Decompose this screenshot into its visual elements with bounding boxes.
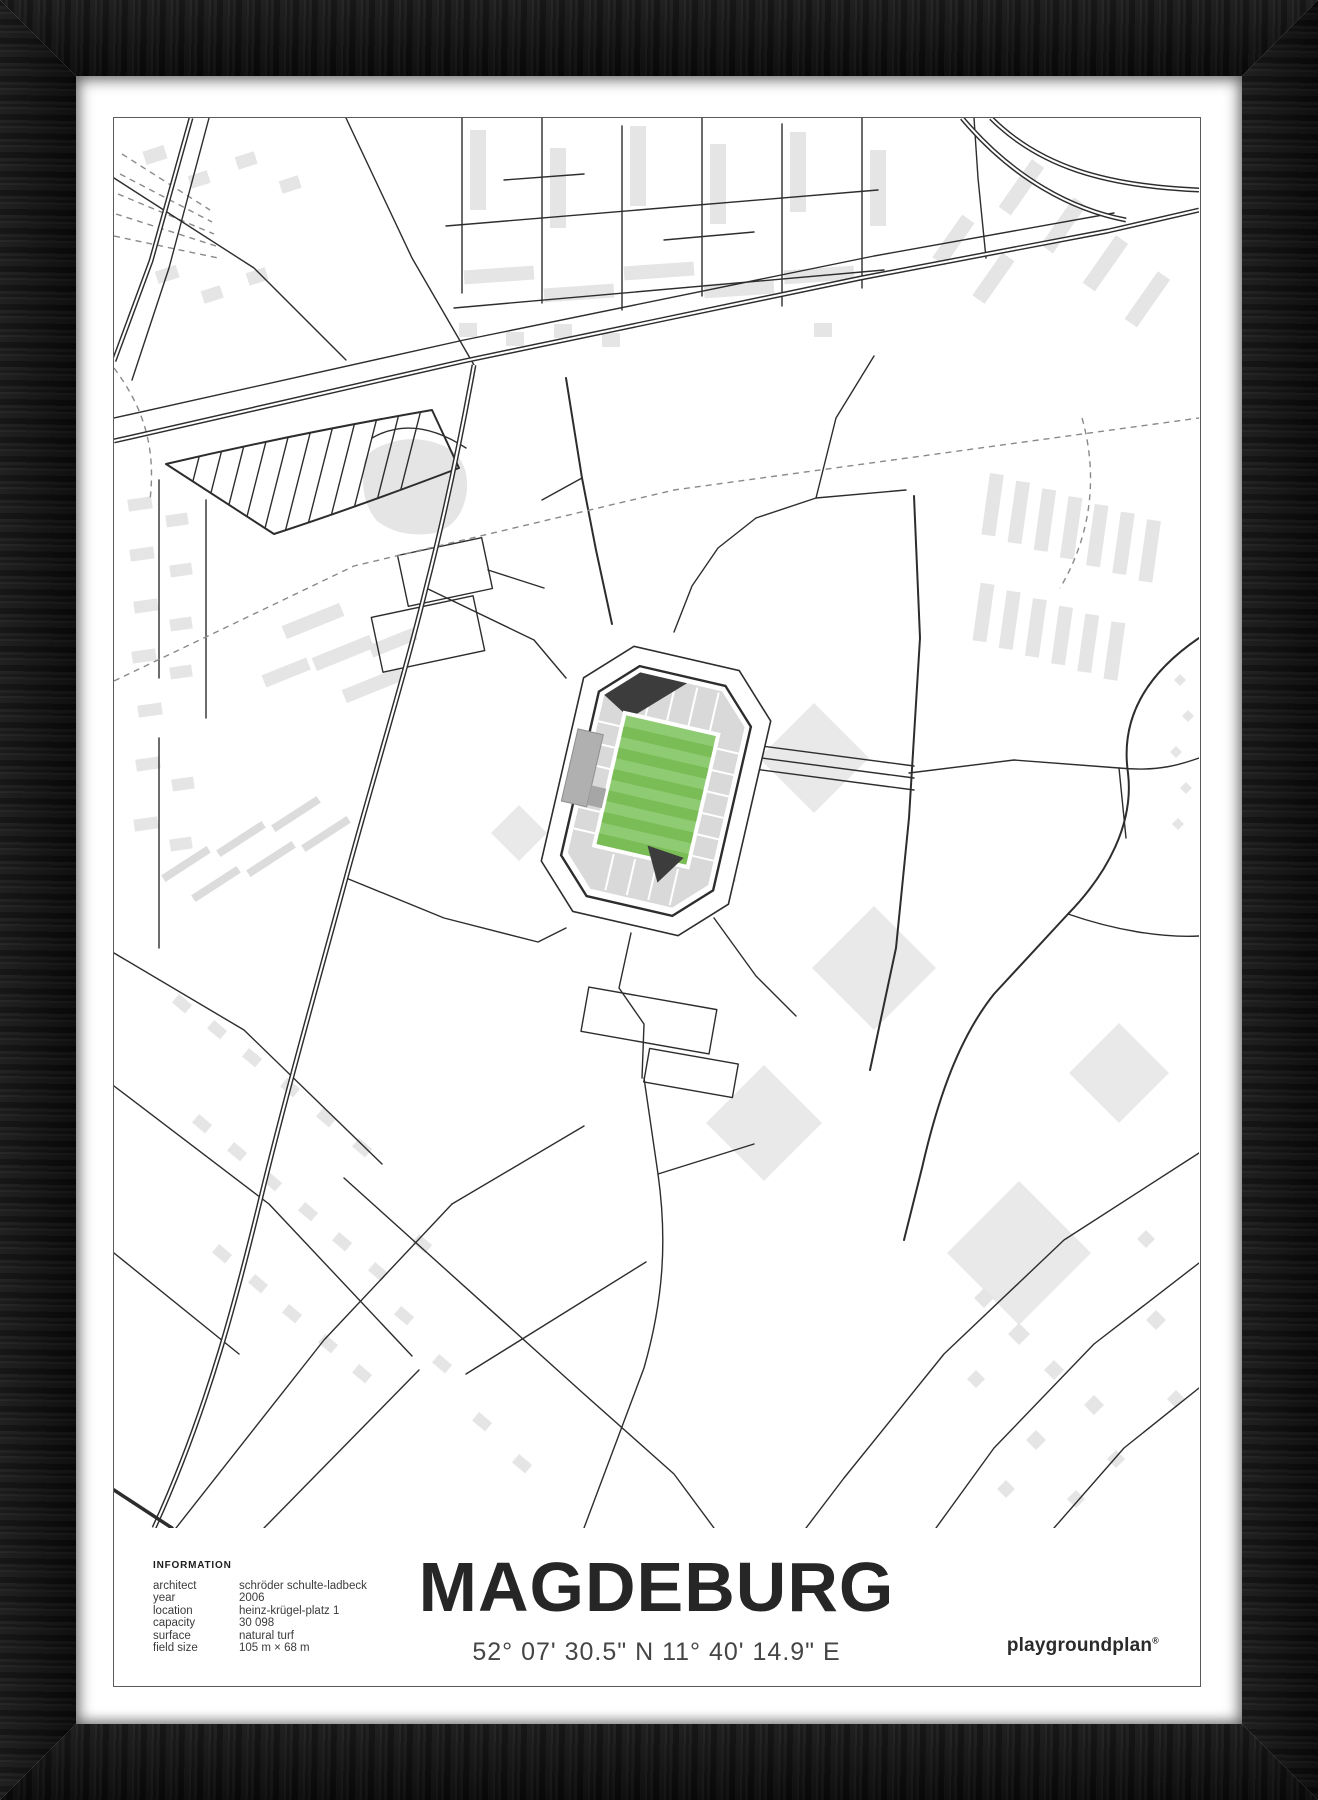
registered-trademark-icon: ®: [1152, 1636, 1159, 1646]
brand-logo: playgroundplan®: [1007, 1635, 1159, 1657]
allotment-rows: [161, 796, 351, 902]
avenue-southwest: [114, 365, 474, 1528]
framed-stadium-poster: INFORMATION architect schröder schulte-l…: [0, 0, 1318, 1800]
poster-caption: INFORMATION architect schröder schulte-l…: [114, 1528, 1199, 1685]
frame-bottom: [0, 1724, 1318, 1800]
frame-right: [1242, 0, 1318, 1800]
frame-left: [0, 0, 76, 1800]
stadium: [532, 637, 780, 945]
interchange-curves: [962, 118, 1199, 220]
motorway: [114, 210, 1199, 441]
city-title: MAGDEBURG: [114, 1552, 1199, 1622]
poster: INFORMATION architect schröder schulte-l…: [113, 117, 1201, 1687]
stadium-street-map: [114, 118, 1199, 1528]
frame-top: [0, 0, 1318, 76]
